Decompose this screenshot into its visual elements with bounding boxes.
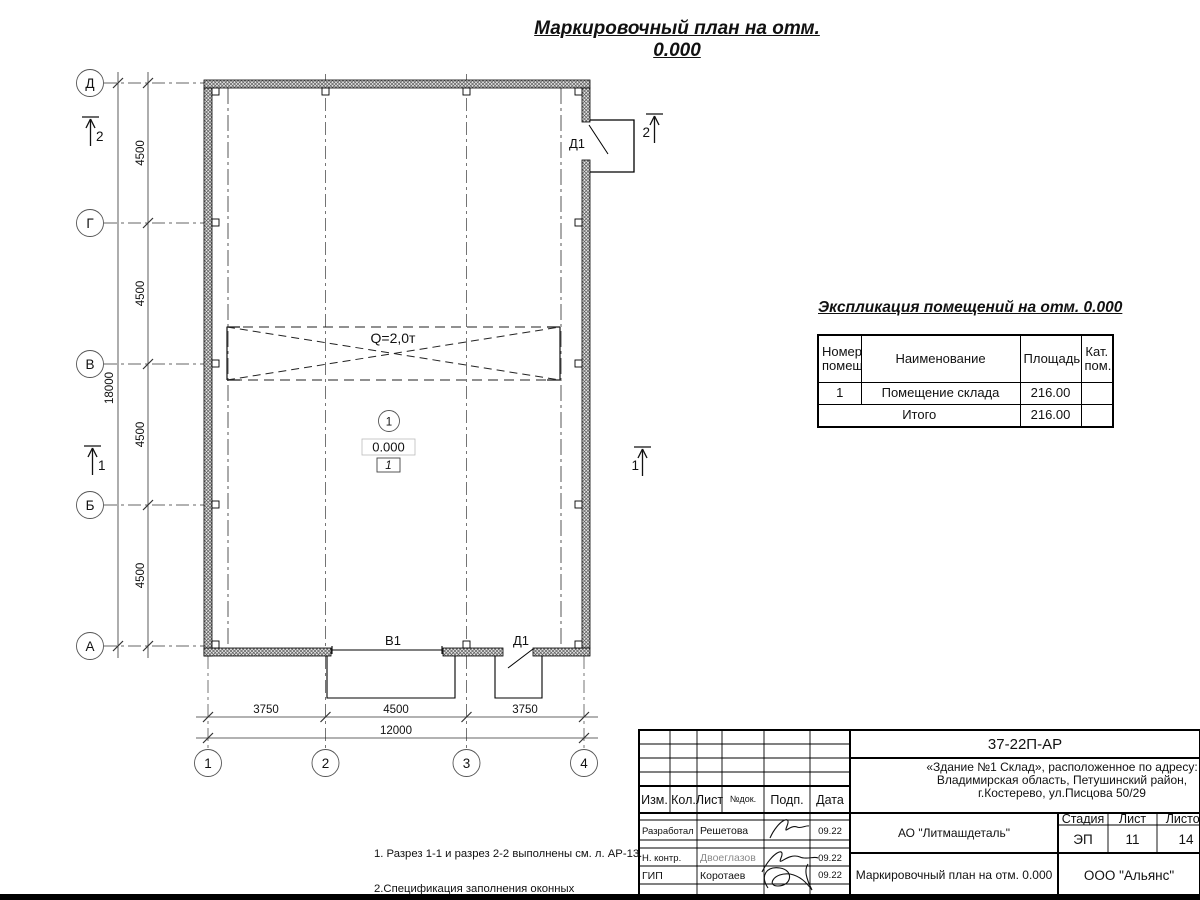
svg-text:4500: 4500 [135,563,147,589]
col-name: Наименование [861,335,1020,383]
svg-text:г.Костерево, ул.Писцова 50/29: г.Костерево, ул.Писцова 50/29 [978,786,1146,800]
doc-number: 37-22П-АР [988,736,1062,753]
svg-text:Кол.: Кол. [671,793,696,807]
svg-text:Решетова: Решетова [700,825,748,837]
svg-text:2: 2 [96,129,104,144]
note-line: 2.Спецификация заполнения оконных [374,884,642,896]
schedule-title: Экспликация помещений на отм. 0.000 [818,299,1138,317]
svg-text:Б: Б [86,498,95,513]
svg-text:09.22: 09.22 [818,826,842,837]
dimension-labels-bottom: 3750 4500 3750 12000 [253,704,538,737]
dim-total-vertical: 18000 [104,372,116,404]
pilasters [212,88,582,648]
svg-text:Дата: Дата [816,793,844,807]
svg-text:4500: 4500 [383,704,409,716]
walls [204,80,590,656]
svg-text:Н. контр.: Н. контр. [642,853,681,864]
svg-text:Коротаев: Коротаев [700,870,746,882]
sheets-value: 14 [1178,832,1194,847]
svg-text:4500: 4500 [135,422,147,448]
axis-bubbles-cols [195,750,598,777]
svg-text:Стадия: Стадия [1062,812,1105,826]
svg-text:В: В [85,357,94,372]
svg-text:Д: Д [85,76,94,91]
drawing-canvas: Д1 В1 Д1 [0,0,1200,900]
signature-1 [770,820,809,838]
total-value: 216.00 [1020,405,1081,428]
schedule-header-row: Номер помещ. Наименование Площадь Кат. п… [818,335,1113,383]
vestibule-top [589,120,634,172]
col-room-number: Номер помещ. [818,335,861,383]
svg-text:4500: 4500 [135,140,147,166]
svg-text:Лист: Лист [696,793,723,807]
axis-col-labels: 1 2 3 4 [204,756,588,771]
door-bottom-leaf [508,649,533,668]
gate-label: В1 [385,633,401,648]
crane-rail-lines [228,88,561,648]
client: АО "Литмашдеталь" [898,826,1010,840]
svg-text:2: 2 [322,756,330,771]
signature-3 [764,864,812,890]
svg-text:№док.: №док. [730,794,756,804]
svg-text:Лист: Лист [1119,812,1146,826]
notes: 1. Разрез 1-1 и разрез 2-2 выполнены см.… [374,826,642,900]
svg-text:09.22: 09.22 [818,853,842,864]
axis-row-labels: Д Г В Б А [85,76,94,654]
level-mark: 0.000 [372,440,405,455]
room-schedule-table: Номер помещ. Наименование Площадь Кат. п… [817,334,1114,428]
col-category: Кат. пом. [1081,335,1113,383]
room-number: 1 [386,417,392,429]
total-label: Итого [818,405,1020,428]
company: ООО "Альянс" [1084,868,1174,883]
axis-lines [104,74,584,750]
dimension-lines-left [113,72,153,658]
svg-text:2: 2 [642,125,650,140]
svg-text:Изм.: Изм. [641,793,668,807]
svg-text:Разработал: Разработал [642,826,694,837]
sheet-value: 11 [1125,832,1139,847]
svg-text:ГИП: ГИП [642,870,663,882]
svg-text:1: 1 [631,458,639,473]
floor-type-mark: 1 [385,460,391,472]
schedule-total-row: Итого 216.00 [818,405,1113,428]
svg-text:09.22: 09.22 [818,870,842,881]
door-label-top: Д1 [569,136,585,151]
platforms [327,656,542,698]
crane-capacity-label: Q=2,0т [371,330,417,346]
stage-value: ЭП [1073,832,1092,847]
svg-text:3750: 3750 [512,704,538,716]
drawing-sheet: Маркировочный план на отм. 0.000 [0,0,1200,900]
svg-text:А: А [85,639,94,654]
drawing-title: Маркировочный план на отм. 0.000 [856,868,1053,882]
svg-text:4500: 4500 [135,281,147,307]
schedule-row: 1 Помещение склада 216.00 [818,383,1113,405]
svg-text:«Здание №1 Склад», расположенн: «Здание №1 Склад», расположенное по адре… [926,760,1197,774]
svg-text:3: 3 [463,756,471,771]
svg-text:Г: Г [86,216,94,231]
svg-text:Подп.: Подп. [770,793,803,807]
section-markers [82,114,663,476]
col-area: Площадь [1020,335,1081,383]
door-label-bottom: Д1 [513,633,529,648]
svg-text:1: 1 [98,458,106,473]
note-line: 1. Разрез 1-1 и разрез 2-2 выполнены см.… [374,849,642,861]
svg-text:4: 4 [580,756,588,771]
svg-text:Листов: Листов [1166,812,1200,826]
svg-text:Владимирская область, Петушинс: Владимирская область, Петушинский район, [937,773,1187,787]
titleblock-roles: Разработал Решетова 09.22 Н. контр. Двое… [642,825,842,882]
svg-text:1: 1 [204,756,212,771]
svg-text:3750: 3750 [253,704,279,716]
section-marker-labels: 2 1 2 1 [96,125,650,473]
room-mark: 1 0.000 1 [362,411,415,473]
titleblock-header-labels: Изм. Кол. Лист №док. Подп. Дата [641,793,844,807]
svg-text:Двоеглазов: Двоеглазов [700,852,756,864]
dim-total-horizontal: 12000 [380,725,412,737]
